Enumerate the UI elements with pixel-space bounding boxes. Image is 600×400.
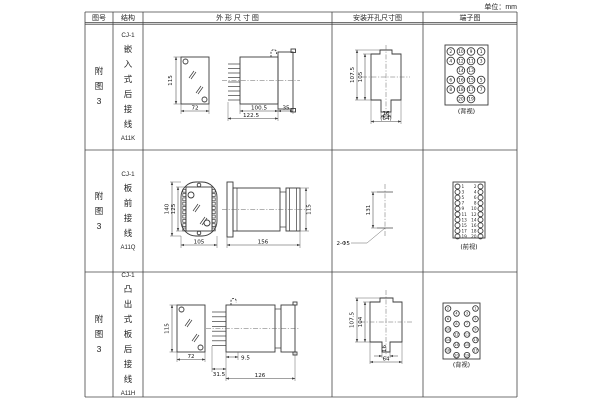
svg-text:15: 15 [462, 223, 468, 228]
svg-text:12: 12 [458, 59, 464, 65]
svg-text:20: 20 [454, 353, 458, 357]
dim-label: 105 [358, 71, 364, 82]
screw-slot-icon [185, 319, 199, 342]
a11q-install-drawing: 131 2-Φ5 [336, 184, 393, 247]
svg-text:7: 7 [462, 201, 465, 206]
svg-text:17: 17 [473, 349, 477, 353]
svg-text:6: 6 [447, 317, 449, 321]
dim-label: 104 [358, 316, 364, 327]
dim-label: 64 [382, 357, 390, 363]
svg-text:9: 9 [462, 206, 465, 211]
dim-label: 107.5 [350, 312, 356, 328]
svg-text:5: 5 [480, 78, 483, 84]
svg-text:19: 19 [468, 97, 474, 103]
svg-text:3: 3 [466, 312, 468, 316]
a11h-install-drawing: 107.5 104 16 64 [350, 290, 413, 364]
svg-text:3: 3 [462, 190, 465, 195]
terminal-pins: 2109141211314136161558181772019 [447, 48, 485, 103]
svg-text:2: 2 [449, 49, 452, 55]
svg-text:8: 8 [474, 201, 477, 206]
screw-slot-icon [193, 204, 207, 225]
view-label: (背视) [453, 361, 470, 369]
dim-label: 140 [165, 203, 171, 214]
svg-text:14: 14 [458, 68, 464, 74]
svg-text:11: 11 [465, 333, 469, 337]
svg-text:8: 8 [455, 322, 457, 326]
svg-text:18: 18 [471, 228, 477, 233]
svg-text:10: 10 [446, 328, 450, 332]
svg-text:8: 8 [449, 87, 452, 93]
svg-text:5: 5 [474, 317, 476, 321]
svg-text:12: 12 [471, 212, 477, 217]
a11k-install-drawing: 107.5 105 16 (64) [350, 45, 410, 124]
svg-text:18: 18 [446, 349, 450, 353]
svg-text:3: 3 [480, 59, 483, 65]
drawings-svg: 115 72 100.5 35 122.5 [0, 0, 600, 400]
svg-text:16: 16 [471, 223, 477, 228]
svg-text:14: 14 [446, 338, 450, 342]
dim-label: 115 [165, 323, 171, 334]
svg-text:19: 19 [465, 353, 469, 357]
svg-text:4: 4 [449, 59, 452, 65]
dim-label: 72 [187, 354, 194, 360]
view-label: (背视) [458, 108, 475, 116]
a11h-outline-drawing: 115 72 31.5 9.5 126 [165, 298, 301, 381]
svg-text:1: 1 [480, 49, 483, 55]
dim-label: 115 [307, 204, 313, 215]
dim-label: 126 [255, 373, 266, 379]
a11q-terminal-diagram: 1234567891011121314151617181920 (前视) [453, 182, 485, 251]
a11k-terminal-diagram: 2109141211314136161558181772019 (背视) [445, 45, 488, 116]
dim-label: 35 [282, 106, 290, 112]
svg-text:6: 6 [474, 195, 477, 200]
svg-text:20: 20 [471, 234, 477, 239]
svg-text:10: 10 [458, 49, 464, 55]
svg-text:17: 17 [462, 228, 468, 233]
svg-text:14: 14 [471, 217, 477, 222]
hole-callout-label: 2-Φ5 [336, 241, 350, 247]
svg-text:9: 9 [470, 49, 473, 55]
svg-text:11: 11 [462, 212, 468, 217]
dim-label: 122.5 [243, 113, 259, 119]
screw-slot-icon [189, 71, 203, 94]
svg-text:19: 19 [462, 234, 468, 239]
svg-text:4: 4 [455, 312, 457, 316]
svg-text:16: 16 [458, 78, 464, 84]
svg-text:18: 18 [458, 87, 464, 93]
dim-label: 16 [382, 345, 388, 353]
svg-text:16: 16 [454, 343, 458, 347]
svg-text:17: 17 [468, 87, 474, 93]
dim-label: 131 [366, 204, 372, 215]
terminal-pins: 2610141848121620371115191591317 [445, 306, 478, 358]
svg-text:2: 2 [447, 307, 449, 311]
dim-label: 100.5 [251, 106, 267, 112]
view-label: (前视) [460, 243, 477, 251]
svg-text:11: 11 [468, 59, 474, 65]
svg-text:20: 20 [458, 97, 464, 103]
svg-text:7: 7 [480, 87, 483, 93]
terminal-comb [212, 312, 226, 346]
svg-text:15: 15 [468, 78, 474, 84]
svg-text:15: 15 [465, 343, 469, 347]
svg-text:13: 13 [468, 68, 474, 74]
dim-label: 156 [258, 240, 269, 246]
svg-text:1: 1 [462, 184, 465, 189]
dim-label: (64) [380, 116, 391, 122]
svg-text:13: 13 [462, 217, 468, 222]
dim-label: 105 [194, 240, 205, 246]
dim-label: 72 [191, 106, 198, 112]
hook-icon [271, 50, 277, 57]
svg-text:7: 7 [466, 322, 468, 326]
svg-text:13: 13 [473, 338, 477, 342]
svg-text:2: 2 [474, 184, 477, 189]
svg-text:4: 4 [474, 190, 477, 195]
dim-label: 115 [168, 75, 174, 86]
manual-page: 单位：mm 图号 结构 外 形 尺 寸 图 安装开孔尺寸图 端子图 附图3 CJ… [0, 0, 600, 400]
a11k-outline-drawing: 115 72 100.5 35 122.5 [168, 49, 300, 121]
svg-text:6: 6 [449, 78, 452, 84]
dim-label: 31.5 [213, 372, 226, 378]
svg-text:9: 9 [474, 328, 476, 332]
terminal-comb [228, 64, 240, 100]
dim-label: 107.5 [350, 67, 356, 83]
svg-text:5: 5 [462, 195, 465, 200]
a11h-terminal-diagram: 2610141848121620371115191591317 (背视) [443, 303, 480, 369]
dim-label: 9.5 [241, 356, 250, 362]
terminal-pins: 1234567891011121314151617181920 [455, 184, 483, 239]
a11q-outline-drawing: 140 125 105 156 115 [165, 182, 313, 248]
table-grid [85, 12, 517, 397]
svg-text:1: 1 [474, 307, 476, 311]
svg-text:10: 10 [471, 206, 477, 211]
svg-text:12: 12 [454, 333, 458, 337]
dim-label: 125 [171, 203, 177, 214]
hook-icon [231, 298, 236, 305]
